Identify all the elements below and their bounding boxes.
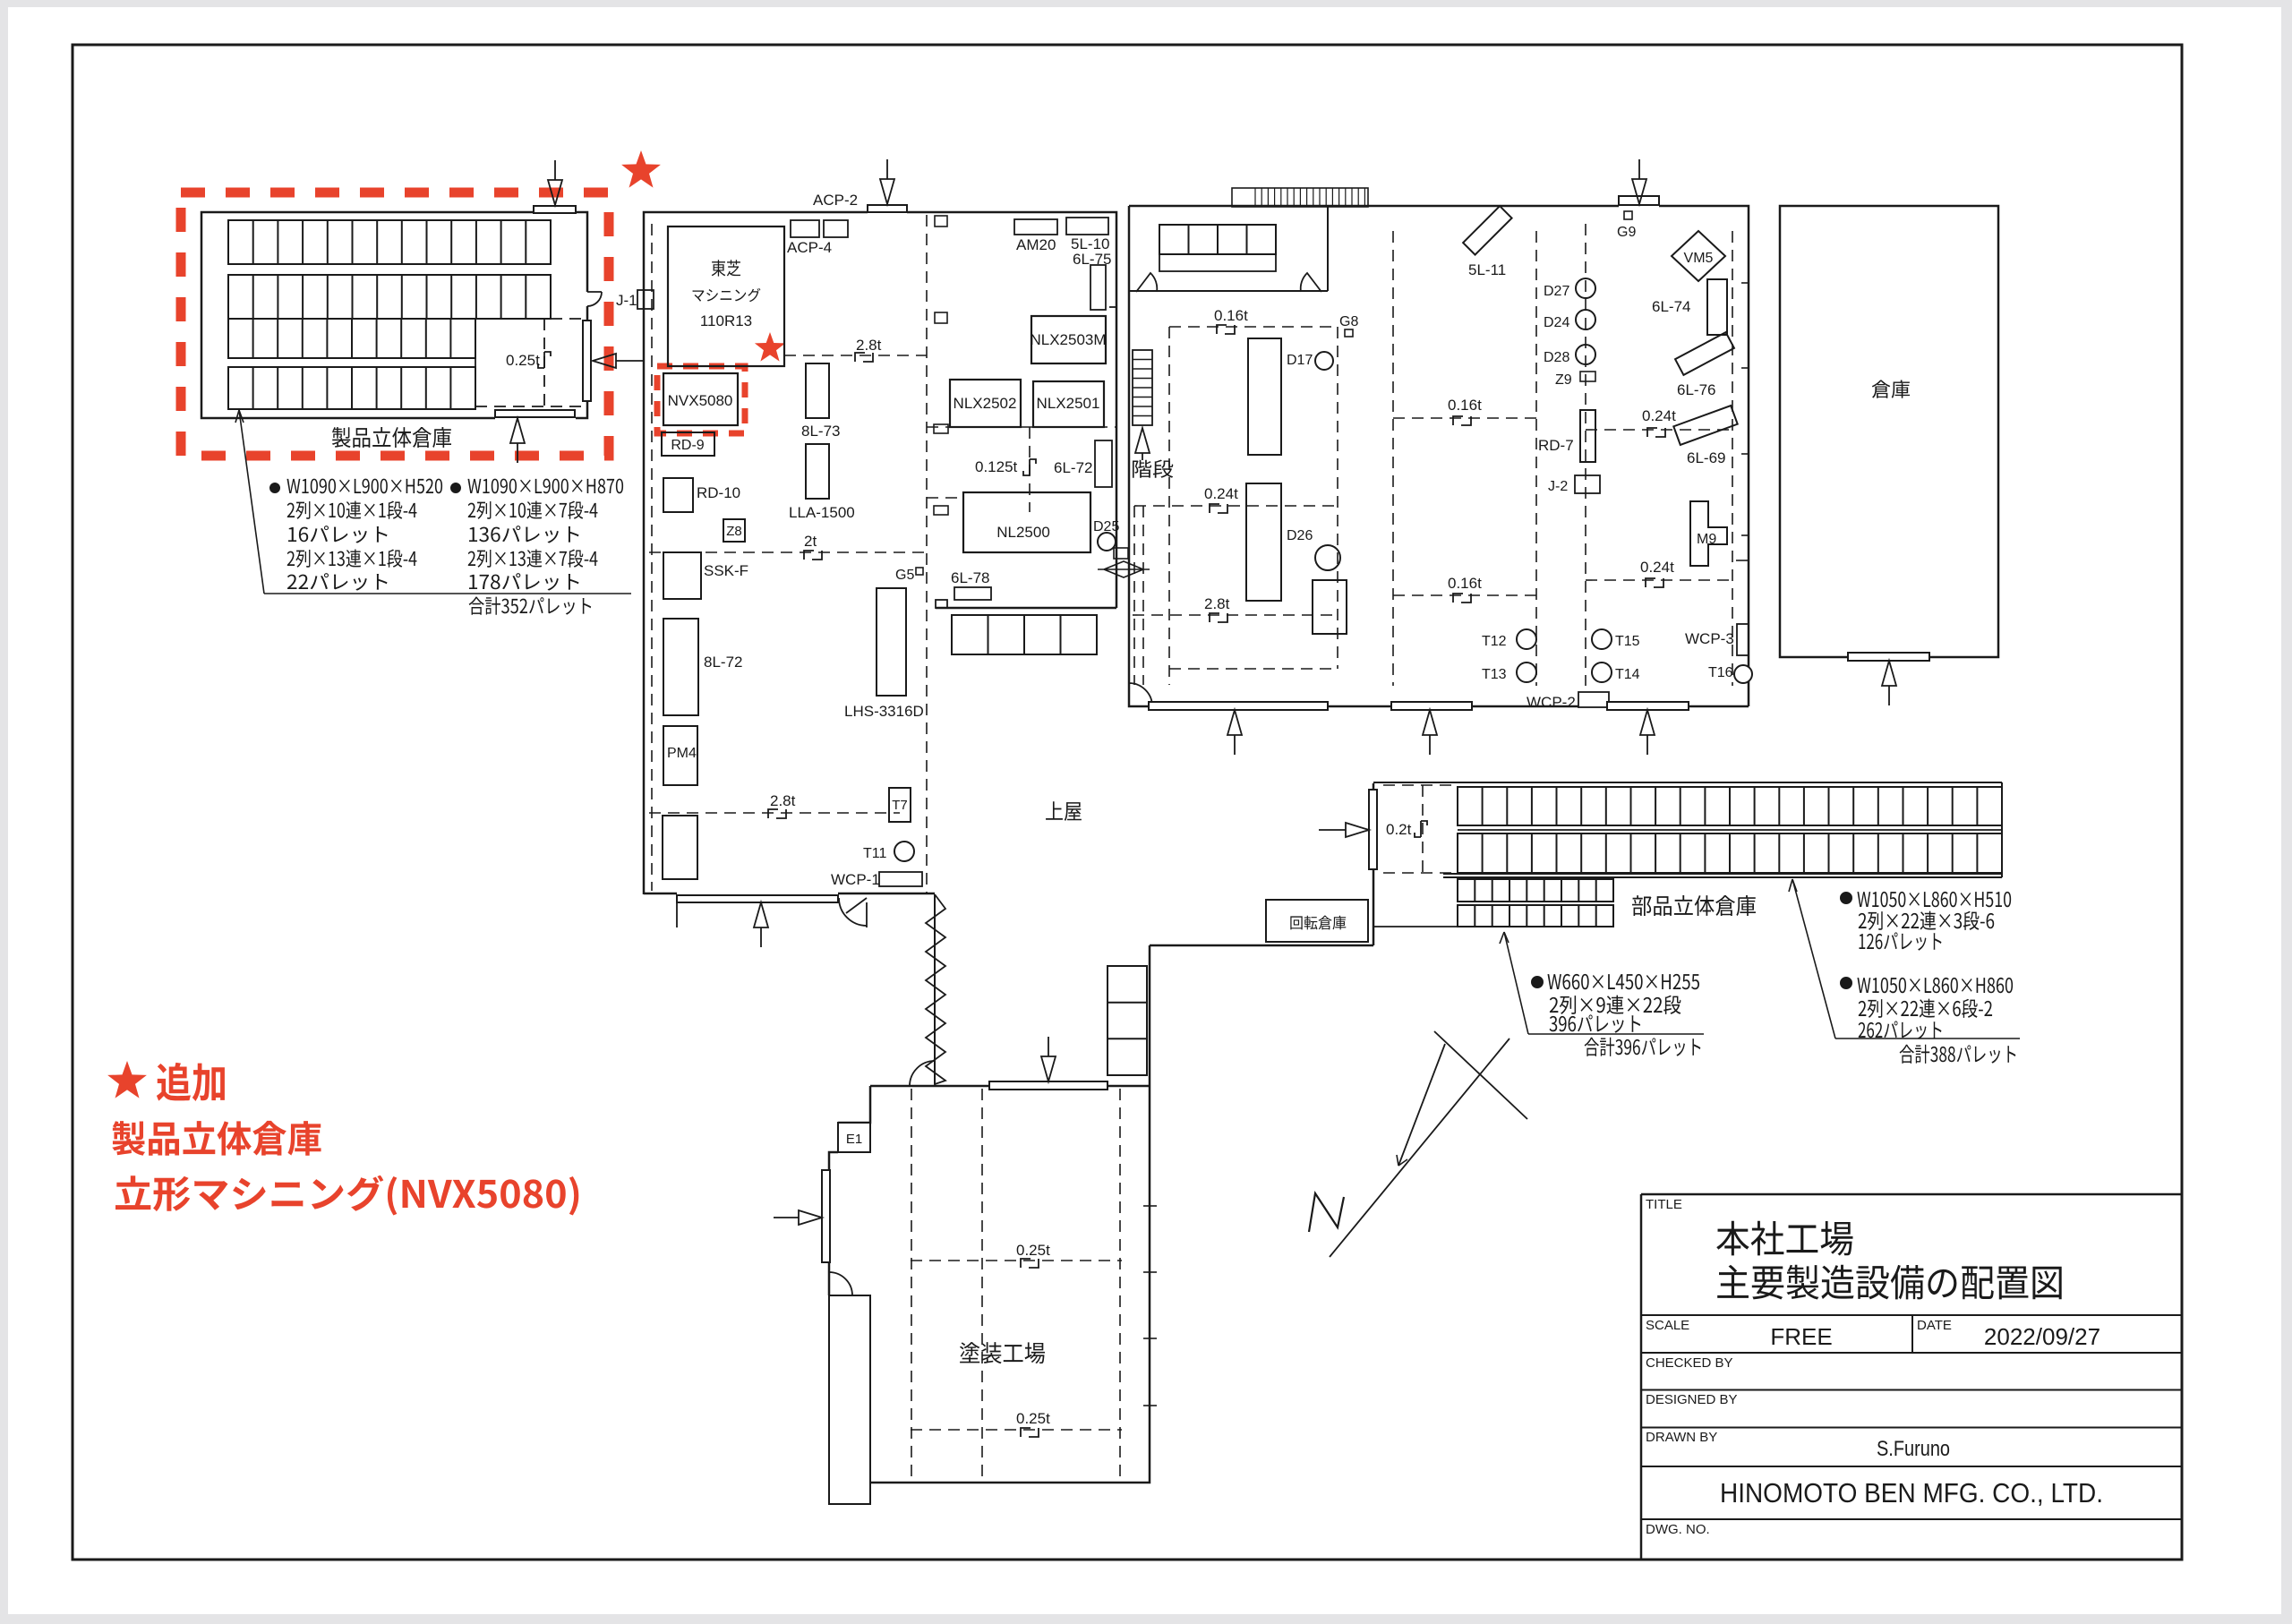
svg-text:6L-72: 6L-72: [1054, 459, 1092, 476]
svg-text:0.16t: 0.16t: [1448, 575, 1482, 592]
svg-text:DATE: DATE: [1917, 1318, 1952, 1333]
svg-text:0.2t: 0.2t: [1386, 821, 1412, 838]
svg-text:6L-69: 6L-69: [1687, 449, 1725, 466]
svg-text:FREE: FREE: [1770, 1323, 1832, 1350]
svg-text:J-1: J-1: [616, 292, 637, 309]
svg-text:D26: D26: [1287, 528, 1313, 543]
svg-text:2.8t: 2.8t: [1204, 595, 1230, 612]
svg-text:WCP-3: WCP-3: [1685, 630, 1734, 647]
svg-text:0.25t: 0.25t: [1016, 1410, 1050, 1427]
svg-text:0.25t: 0.25t: [506, 352, 540, 369]
svg-text:0.16t: 0.16t: [1214, 307, 1248, 324]
svg-text:0.24t: 0.24t: [1204, 485, 1238, 502]
svg-text:T12: T12: [1482, 634, 1507, 649]
svg-text:VM5: VM5: [1684, 251, 1714, 266]
svg-text:E1: E1: [846, 1132, 862, 1147]
svg-text:0.24t: 0.24t: [1640, 559, 1674, 576]
svg-text:0.24t: 0.24t: [1642, 407, 1676, 424]
svg-text:S.Furuno: S.Furuno: [1877, 1437, 1950, 1461]
svg-text:HINOMOTO BEN MFG. CO., LTD.: HINOMOTO BEN MFG. CO., LTD.: [1720, 1477, 2103, 1509]
svg-text:0.16t: 0.16t: [1448, 397, 1482, 414]
svg-text:0.25t: 0.25t: [1016, 1242, 1050, 1259]
svg-text:M9: M9: [1697, 532, 1716, 547]
svg-text:LLA-1500: LLA-1500: [789, 504, 855, 521]
svg-text:T13: T13: [1482, 667, 1507, 682]
svg-text:PM4: PM4: [667, 746, 697, 761]
svg-text:2t: 2t: [804, 533, 817, 550]
svg-text:D27: D27: [1544, 284, 1569, 299]
svg-text:NL2500: NL2500: [996, 524, 1050, 541]
svg-text:WCP-1: WCP-1: [831, 871, 880, 888]
svg-text:Z9: Z9: [1555, 372, 1572, 388]
svg-text:LHS-3316D: LHS-3316D: [844, 703, 924, 720]
svg-text:RD-9: RD-9: [671, 438, 704, 453]
svg-text:RD-10: RD-10: [697, 484, 740, 501]
svg-text:RD-7: RD-7: [1538, 437, 1574, 454]
svg-text:5L-11: 5L-11: [1468, 261, 1506, 278]
svg-text:NVX5080: NVX5080: [668, 392, 733, 409]
svg-text:ACP-2: ACP-2: [813, 192, 858, 209]
svg-text:NLX2501: NLX2501: [1037, 395, 1100, 412]
svg-text:8L-72: 8L-72: [704, 654, 742, 671]
svg-text:CHECKED BY: CHECKED BY: [1646, 1355, 1733, 1371]
svg-text:NLX2502: NLX2502: [954, 395, 1017, 412]
svg-text:DWG. NO.: DWG. NO.: [1646, 1522, 1710, 1537]
svg-text:AM20: AM20: [1016, 236, 1056, 253]
svg-text:WCP-2: WCP-2: [1527, 694, 1576, 711]
svg-text:G5: G5: [895, 568, 914, 583]
svg-text:SSK-F: SSK-F: [704, 562, 748, 579]
svg-text:DESIGNED BY: DESIGNED BY: [1646, 1392, 1738, 1407]
svg-text:SCALE: SCALE: [1646, 1318, 1689, 1333]
svg-text:T15: T15: [1615, 634, 1640, 649]
svg-text:ACP-4: ACP-4: [787, 239, 832, 256]
svg-text:2022/09/27: 2022/09/27: [1984, 1323, 2100, 1350]
svg-text:NLX2503M: NLX2503M: [1030, 331, 1106, 348]
svg-text:G8: G8: [1339, 314, 1358, 329]
svg-text:6L-76: 6L-76: [1677, 381, 1715, 398]
svg-text:2.8t: 2.8t: [856, 337, 882, 354]
svg-text:DRAWN BY: DRAWN BY: [1646, 1430, 1717, 1445]
svg-text:110R13: 110R13: [700, 312, 752, 329]
svg-text:8L-73: 8L-73: [801, 423, 840, 440]
svg-text:D24: D24: [1544, 315, 1569, 330]
svg-text:D17: D17: [1287, 353, 1313, 368]
svg-text:0.125t: 0.125t: [975, 458, 1018, 475]
svg-text:Z8: Z8: [726, 524, 742, 539]
svg-text:6L-78: 6L-78: [951, 569, 989, 586]
svg-text:6L-74: 6L-74: [1652, 298, 1690, 315]
svg-text:T14: T14: [1615, 667, 1640, 682]
svg-text:TITLE: TITLE: [1646, 1197, 1682, 1212]
svg-text:2.8t: 2.8t: [770, 792, 796, 809]
svg-text:T11: T11: [863, 846, 886, 861]
svg-text:J-2: J-2: [1548, 479, 1568, 494]
svg-text:T16: T16: [1708, 665, 1733, 680]
svg-text:G9: G9: [1617, 225, 1636, 240]
svg-text:T7: T7: [892, 798, 908, 813]
svg-text:D28: D28: [1544, 350, 1569, 365]
